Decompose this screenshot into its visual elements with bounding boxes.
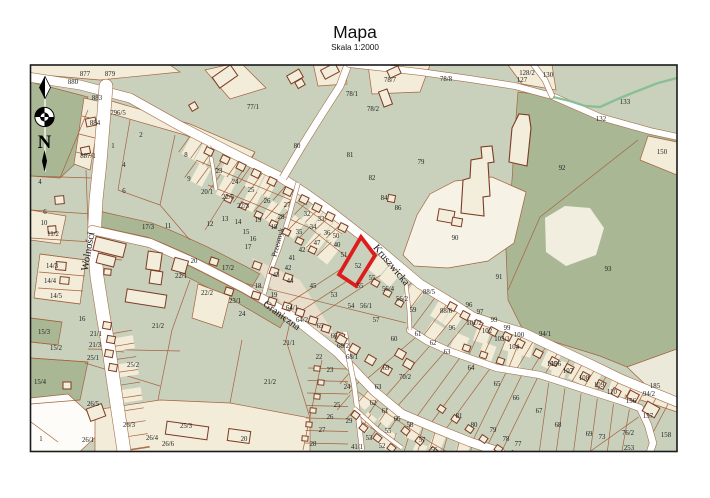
svg-text:26/5: 26/5 bbox=[87, 401, 100, 408]
svg-text:64/1: 64/1 bbox=[286, 305, 298, 312]
svg-text:29: 29 bbox=[346, 418, 353, 425]
svg-text:52: 52 bbox=[355, 263, 362, 270]
svg-text:157: 157 bbox=[643, 413, 654, 420]
svg-text:73: 73 bbox=[599, 434, 606, 441]
svg-text:6: 6 bbox=[122, 188, 126, 195]
svg-text:56/2: 56/2 bbox=[396, 296, 409, 303]
svg-text:77/1: 77/1 bbox=[247, 104, 259, 111]
svg-text:132: 132 bbox=[596, 116, 607, 123]
svg-text:879: 879 bbox=[105, 71, 116, 78]
svg-text:45: 45 bbox=[310, 283, 317, 290]
svg-text:40: 40 bbox=[334, 242, 341, 249]
svg-text:28: 28 bbox=[310, 441, 317, 448]
svg-text:17: 17 bbox=[245, 244, 252, 251]
svg-text:14/4: 14/4 bbox=[44, 278, 57, 285]
svg-text:88/5: 88/5 bbox=[423, 289, 436, 296]
svg-text:101/2: 101/2 bbox=[466, 320, 482, 327]
svg-text:24: 24 bbox=[239, 311, 246, 318]
svg-text:69: 69 bbox=[586, 431, 593, 438]
svg-text:90: 90 bbox=[452, 235, 459, 242]
svg-text:11/2: 11/2 bbox=[47, 231, 59, 238]
svg-text:109: 109 bbox=[594, 382, 605, 389]
svg-text:59: 59 bbox=[410, 307, 417, 314]
svg-text:92: 92 bbox=[559, 165, 566, 172]
svg-text:1: 1 bbox=[39, 436, 42, 443]
svg-text:79: 79 bbox=[490, 427, 497, 434]
svg-text:22: 22 bbox=[316, 354, 323, 361]
svg-text:51: 51 bbox=[341, 252, 348, 259]
svg-text:25: 25 bbox=[334, 402, 341, 409]
svg-text:17/3: 17/3 bbox=[142, 224, 155, 231]
svg-text:21/3: 21/3 bbox=[89, 342, 102, 349]
svg-text:14/5: 14/5 bbox=[50, 293, 63, 300]
svg-text:80: 80 bbox=[471, 422, 478, 429]
svg-text:78/7: 78/7 bbox=[384, 77, 397, 84]
svg-text:44: 44 bbox=[287, 278, 294, 285]
svg-text:78/1: 78/1 bbox=[346, 91, 358, 98]
svg-text:14: 14 bbox=[235, 219, 242, 226]
svg-text:34: 34 bbox=[310, 224, 317, 231]
svg-text:28: 28 bbox=[278, 214, 285, 221]
svg-text:21/1: 21/1 bbox=[90, 331, 102, 338]
svg-text:15/4: 15/4 bbox=[34, 379, 47, 386]
svg-text:27: 27 bbox=[319, 427, 326, 434]
svg-text:21/1: 21/1 bbox=[283, 340, 295, 347]
svg-text:23: 23 bbox=[327, 367, 334, 374]
svg-text:53: 53 bbox=[331, 292, 338, 299]
svg-text:96: 96 bbox=[449, 325, 456, 332]
svg-text:81: 81 bbox=[347, 152, 354, 159]
svg-text:N: N bbox=[38, 132, 52, 153]
svg-text:6: 6 bbox=[43, 209, 47, 216]
svg-text:21/2: 21/2 bbox=[152, 323, 165, 330]
svg-text:884: 884 bbox=[90, 120, 101, 127]
svg-text:78/8: 78/8 bbox=[440, 76, 453, 83]
svg-text:94/2: 94/2 bbox=[643, 391, 656, 398]
svg-text:22/2: 22/2 bbox=[201, 290, 214, 297]
svg-text:883: 883 bbox=[92, 95, 103, 102]
svg-text:91: 91 bbox=[496, 274, 503, 281]
svg-text:127: 127 bbox=[517, 77, 528, 84]
svg-text:41: 41 bbox=[289, 255, 296, 262]
svg-text:4: 4 bbox=[122, 162, 126, 169]
svg-text:133: 133 bbox=[620, 99, 631, 106]
svg-text:33: 33 bbox=[318, 216, 325, 223]
svg-text:61: 61 bbox=[382, 408, 389, 415]
svg-text:62: 62 bbox=[370, 400, 377, 407]
svg-text:41/1: 41/1 bbox=[351, 444, 363, 451]
svg-text:70/2: 70/2 bbox=[399, 374, 412, 381]
svg-text:50: 50 bbox=[333, 233, 340, 240]
svg-text:78: 78 bbox=[503, 436, 510, 443]
svg-text:63: 63 bbox=[444, 349, 451, 356]
svg-text:96: 96 bbox=[466, 302, 473, 309]
svg-text:23/1: 23/1 bbox=[229, 298, 241, 305]
svg-text:56/4: 56/4 bbox=[382, 286, 395, 293]
svg-text:1: 1 bbox=[111, 143, 114, 150]
svg-text:53: 53 bbox=[366, 435, 373, 442]
svg-text:42: 42 bbox=[285, 265, 292, 272]
svg-text:77: 77 bbox=[515, 441, 522, 448]
svg-text:62: 62 bbox=[430, 340, 437, 347]
svg-text:22/3: 22/3 bbox=[237, 203, 250, 210]
svg-text:35: 35 bbox=[296, 229, 303, 236]
svg-text:22/1: 22/1 bbox=[175, 273, 187, 280]
svg-text:21/2: 21/2 bbox=[264, 379, 277, 386]
svg-text:80: 80 bbox=[294, 143, 301, 150]
svg-text:107: 107 bbox=[563, 368, 574, 375]
svg-text:68/1: 68/1 bbox=[346, 354, 358, 361]
svg-text:88/6: 88/6 bbox=[440, 308, 453, 315]
svg-text:26: 26 bbox=[327, 414, 334, 421]
svg-text:25/1: 25/1 bbox=[87, 355, 99, 362]
svg-text:66: 66 bbox=[513, 395, 520, 402]
svg-text:82: 82 bbox=[369, 175, 376, 182]
svg-text:19: 19 bbox=[271, 292, 278, 299]
svg-text:60: 60 bbox=[391, 336, 398, 343]
svg-text:9: 9 bbox=[187, 176, 191, 183]
svg-text:55: 55 bbox=[369, 275, 376, 282]
svg-text:100: 100 bbox=[514, 332, 525, 339]
svg-text:57: 57 bbox=[419, 437, 426, 444]
svg-text:43: 43 bbox=[273, 272, 280, 279]
svg-text:130: 130 bbox=[543, 72, 554, 79]
svg-text:26/1: 26/1 bbox=[82, 437, 94, 444]
svg-text:106: 106 bbox=[551, 361, 562, 368]
svg-text:55: 55 bbox=[385, 428, 392, 435]
svg-text:99: 99 bbox=[491, 317, 498, 324]
svg-text:27: 27 bbox=[284, 202, 291, 209]
svg-text:16: 16 bbox=[250, 236, 257, 243]
svg-text:13: 13 bbox=[222, 216, 229, 223]
svg-text:17/2: 17/2 bbox=[222, 265, 235, 272]
svg-text:10: 10 bbox=[41, 220, 48, 227]
svg-text:99: 99 bbox=[504, 325, 511, 332]
svg-text:25/2: 25/2 bbox=[127, 362, 140, 369]
svg-text:Skala 1:2000: Skala 1:2000 bbox=[331, 43, 379, 52]
svg-text:68/2: 68/2 bbox=[337, 343, 350, 350]
svg-text:Mapa: Mapa bbox=[333, 22, 377, 42]
svg-text:16: 16 bbox=[79, 316, 86, 323]
svg-text:24: 24 bbox=[232, 179, 239, 186]
svg-text:47: 47 bbox=[314, 240, 321, 247]
svg-text:93: 93 bbox=[605, 266, 612, 273]
svg-text:84: 84 bbox=[381, 195, 388, 202]
svg-text:26: 26 bbox=[264, 198, 271, 205]
svg-text:8: 8 bbox=[184, 152, 188, 159]
svg-text:36: 36 bbox=[324, 230, 331, 237]
svg-text:26/4: 26/4 bbox=[146, 435, 159, 442]
svg-text:22/5: 22/5 bbox=[222, 194, 235, 201]
svg-text:68: 68 bbox=[555, 422, 562, 429]
svg-text:103/1: 103/1 bbox=[494, 336, 509, 343]
svg-text:15/2: 15/2 bbox=[50, 345, 63, 352]
svg-text:877: 877 bbox=[80, 71, 91, 78]
svg-text:14/3: 14/3 bbox=[46, 263, 59, 270]
svg-text:65: 65 bbox=[317, 323, 324, 330]
svg-text:4: 4 bbox=[38, 179, 42, 186]
svg-text:81: 81 bbox=[456, 413, 463, 420]
svg-text:12: 12 bbox=[207, 221, 214, 228]
svg-text:94/1: 94/1 bbox=[539, 331, 551, 338]
svg-text:150: 150 bbox=[657, 149, 668, 156]
svg-text:79: 79 bbox=[418, 159, 425, 166]
svg-text:54: 54 bbox=[348, 303, 355, 310]
svg-text:2: 2 bbox=[139, 132, 143, 139]
svg-text:128/2: 128/2 bbox=[519, 70, 535, 77]
svg-text:66: 66 bbox=[394, 416, 401, 423]
svg-text:52: 52 bbox=[379, 443, 386, 450]
svg-text:11: 11 bbox=[165, 223, 172, 230]
svg-text:156: 156 bbox=[626, 398, 637, 405]
svg-text:102: 102 bbox=[482, 328, 493, 335]
svg-text:64: 64 bbox=[468, 365, 475, 372]
svg-text:185: 185 bbox=[650, 383, 661, 390]
svg-text:78/2: 78/2 bbox=[367, 106, 380, 113]
svg-text:66: 66 bbox=[331, 333, 338, 340]
svg-text:18: 18 bbox=[255, 283, 262, 290]
svg-text:104: 104 bbox=[509, 344, 520, 351]
svg-text:108: 108 bbox=[579, 375, 590, 382]
svg-text:55: 55 bbox=[357, 283, 364, 290]
svg-text:23: 23 bbox=[216, 168, 223, 175]
svg-text:15: 15 bbox=[243, 229, 250, 236]
svg-text:65: 65 bbox=[494, 381, 501, 388]
svg-text:42: 42 bbox=[299, 247, 306, 254]
svg-text:58: 58 bbox=[407, 422, 414, 429]
svg-text:25: 25 bbox=[248, 187, 255, 194]
svg-text:880: 880 bbox=[68, 79, 79, 86]
svg-text:57: 57 bbox=[373, 317, 380, 324]
svg-text:158: 158 bbox=[661, 432, 672, 439]
svg-text:76/2: 76/2 bbox=[622, 430, 635, 437]
svg-text:56/1: 56/1 bbox=[360, 303, 372, 310]
svg-text:24: 24 bbox=[344, 384, 351, 391]
svg-text:61: 61 bbox=[415, 331, 422, 338]
svg-text:20: 20 bbox=[241, 436, 248, 443]
svg-text:63: 63 bbox=[375, 384, 382, 391]
svg-text:97: 97 bbox=[477, 309, 484, 316]
svg-text:110: 110 bbox=[607, 389, 618, 396]
svg-text:15/3: 15/3 bbox=[38, 329, 51, 336]
svg-text:32: 32 bbox=[304, 211, 311, 218]
svg-text:26/6: 26/6 bbox=[162, 441, 175, 448]
svg-text:86: 86 bbox=[395, 205, 402, 212]
svg-text:887/1: 887/1 bbox=[80, 153, 95, 160]
svg-text:67: 67 bbox=[536, 408, 543, 415]
svg-text:20/1: 20/1 bbox=[201, 189, 213, 196]
svg-text:25/3: 25/3 bbox=[180, 423, 193, 430]
svg-text:26/3: 26/3 bbox=[123, 422, 136, 429]
svg-text:20: 20 bbox=[191, 258, 198, 265]
svg-text:796/5: 796/5 bbox=[110, 110, 126, 117]
svg-text:69: 69 bbox=[383, 365, 390, 372]
svg-text:19: 19 bbox=[255, 217, 262, 224]
